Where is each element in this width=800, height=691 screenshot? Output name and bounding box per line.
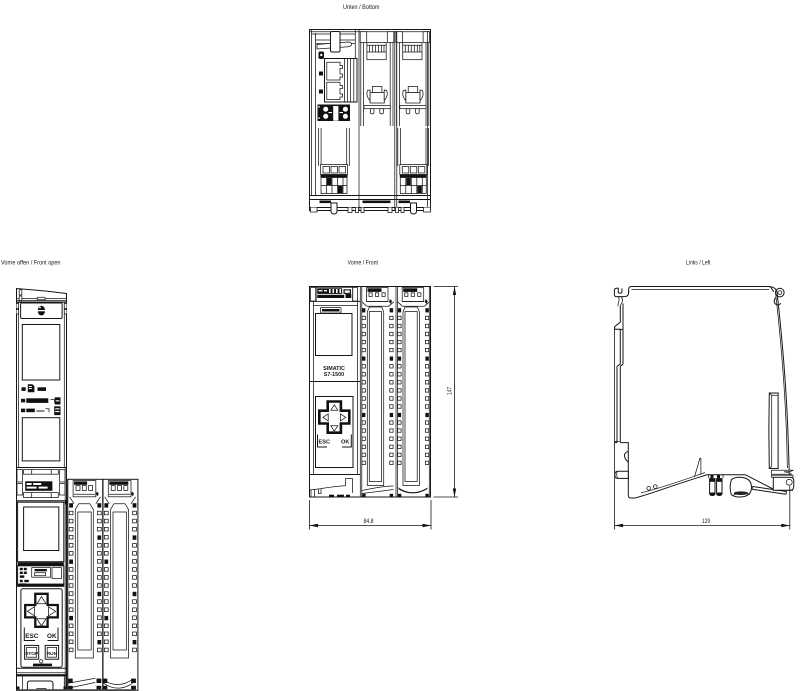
svg-text:OK: OK	[341, 440, 349, 446]
svg-text:Unten / Bottom: Unten / Bottom	[343, 4, 380, 11]
svg-text:S7-1500: S7-1500	[324, 372, 344, 378]
svg-text:ESC: ESC	[25, 633, 39, 640]
svg-text:147: 147	[447, 387, 454, 395]
svg-text:Vorne offen / Front open: Vorne offen / Front open	[1, 260, 61, 267]
svg-text:ESC: ESC	[319, 440, 331, 446]
svg-text:Links / Left: Links / Left	[686, 260, 711, 267]
svg-text:84,8: 84,8	[364, 518, 374, 525]
svg-text:STOP: STOP	[25, 651, 39, 657]
svg-text:RUN: RUN	[47, 651, 58, 657]
svg-text:OK: OK	[47, 633, 57, 640]
svg-text:129: 129	[702, 518, 710, 525]
svg-text:Vorne / Front: Vorne / Front	[348, 260, 379, 267]
